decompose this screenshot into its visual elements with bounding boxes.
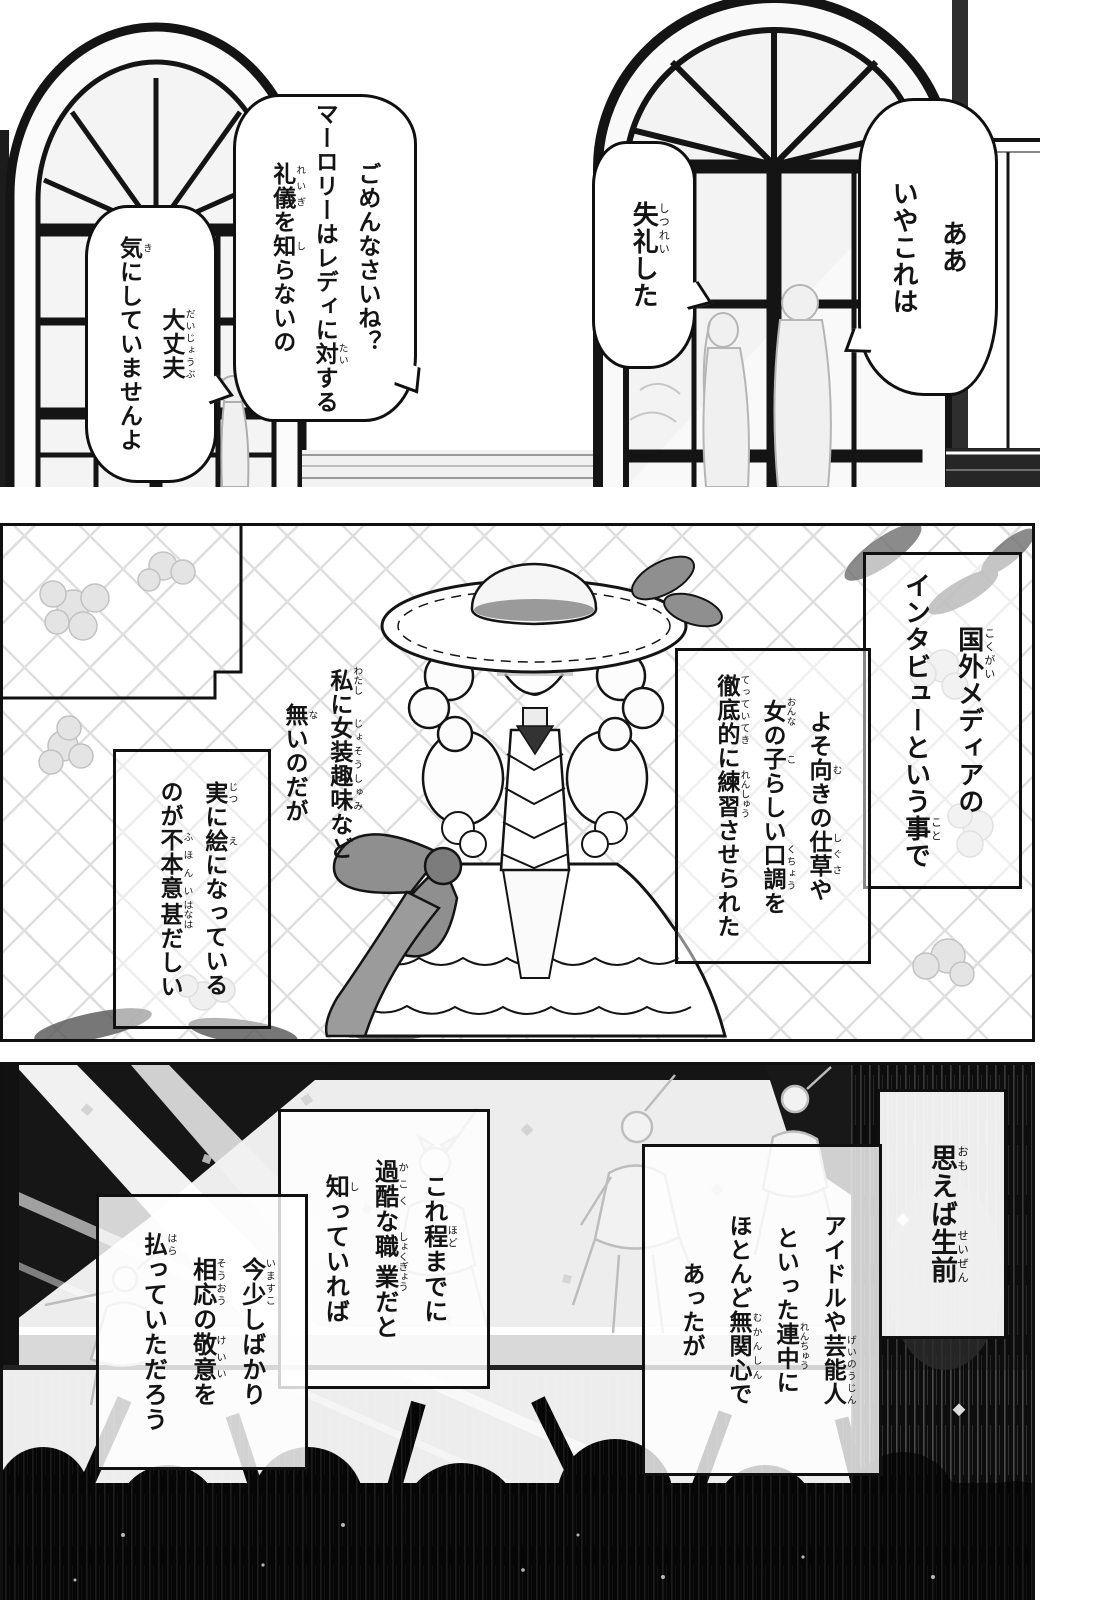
- caption-text: 私わたしに女装趣味じょそうしゅみなど無ないのだが: [272, 666, 362, 861]
- bubble-text: ああいやこれは: [879, 180, 978, 315]
- speech-bubble-shitsurei: 失礼しつれいした: [592, 141, 696, 369]
- baseboard: [302, 450, 602, 487]
- panel-middle-dress: 国外こくがいメディアのインタビューという事ことで よそ向むきの仕草しぐさや女おん…: [0, 523, 1035, 1042]
- caption-watashi-josou: 私わたしに女装趣味じょそうしゅみなど無ないのだが: [265, 666, 369, 894]
- caption-text: 思おもえば生前せいぜん: [915, 1144, 969, 1284]
- caption-imasukoshi-keii: 今少いますこしばかり相応そうおうの敬意けいいを払はらっていただろう: [96, 1194, 308, 1470]
- bubble-text: 大丈夫だいじょうぶ気きにしていませんよ: [108, 236, 194, 452]
- bubble-text: ごめんなさいね？マーロリーはレディに対たいする礼儀れいぎを知しらないの: [261, 102, 389, 414]
- panel-bottom-idol-stage: 思おもえば生前せいぜん アイドルや芸能人げいのうじんといった連中れんちゅうにほと…: [0, 1062, 1035, 1600]
- caption-idol-geinoujin: アイドルや芸能人げいのうじんといった連中れんちゅうにほとんど無関心むかんしんであ…: [642, 1144, 882, 1476]
- caption-kokugai-media: 国外こくがいメディアのインタビューという事ことで: [863, 552, 1022, 889]
- stepped-frame: [3, 526, 241, 698]
- caption-text: 今少いますこしばかり相応そうおうの敬意けいいを払はらっていただろう: [128, 1232, 276, 1432]
- caption-text: 国外こくがいメディアのインタビューという事ことで: [889, 572, 996, 869]
- speech-bubble-daijoubu: 大丈夫だいじょうぶ気きにしていませんよ: [85, 205, 217, 483]
- caption-text: アイドルや芸能人げいのうじんといった連中れんちゅうにほとんど無関心むかんしんであ…: [668, 1214, 857, 1406]
- speech-bubble-gomennasai: ごめんなさいね？マーロリーはレディに対たいする礼儀れいぎを知しらないの: [233, 94, 417, 422]
- panel-top-ballroom: ああいやこれは 失礼しつれいした ごめんなさいね？マーロリーはレディに対たいする…: [0, 0, 1040, 487]
- caption-text: 実じつに絵えになっているのが不本意ふほんい甚はなはだしい: [147, 780, 237, 999]
- dress-character: [326, 548, 726, 1036]
- caption-korehodo-kakoku: これ程ほどまでに過酷かこくな職業しょくぎょうだと知しっていれば: [278, 1109, 490, 1389]
- caption-text: よそ向むきの仕草しぐさや女おんなの子こらしい口調くちょうを徹底的てっていてきに練…: [704, 674, 842, 938]
- manga-page: ああいやこれは 失礼しつれいした ごめんなさいね？マーロリーはレディに対たいする…: [0, 0, 1114, 1600]
- caption-omoeba-seizen: 思おもえば生前せいぜん: [877, 1089, 1007, 1339]
- caption-text: これ程ほどまでに過酷かこくな職業しょくぎょうだと知しっていれば: [310, 1159, 458, 1339]
- caption-yosomuki: よそ向むきの仕草しぐさや女おんなの子こらしい口調くちょうを徹底的てっていてきに練…: [675, 648, 871, 964]
- speech-bubble-aa-iya-koreha: ああいやこれは: [858, 98, 998, 396]
- caption-jitsuni-e: 実じつに絵えになっているのが不本意ふほんい甚はなはだしい: [113, 749, 271, 1029]
- bubble-text: 失礼しつれいした: [619, 201, 669, 309]
